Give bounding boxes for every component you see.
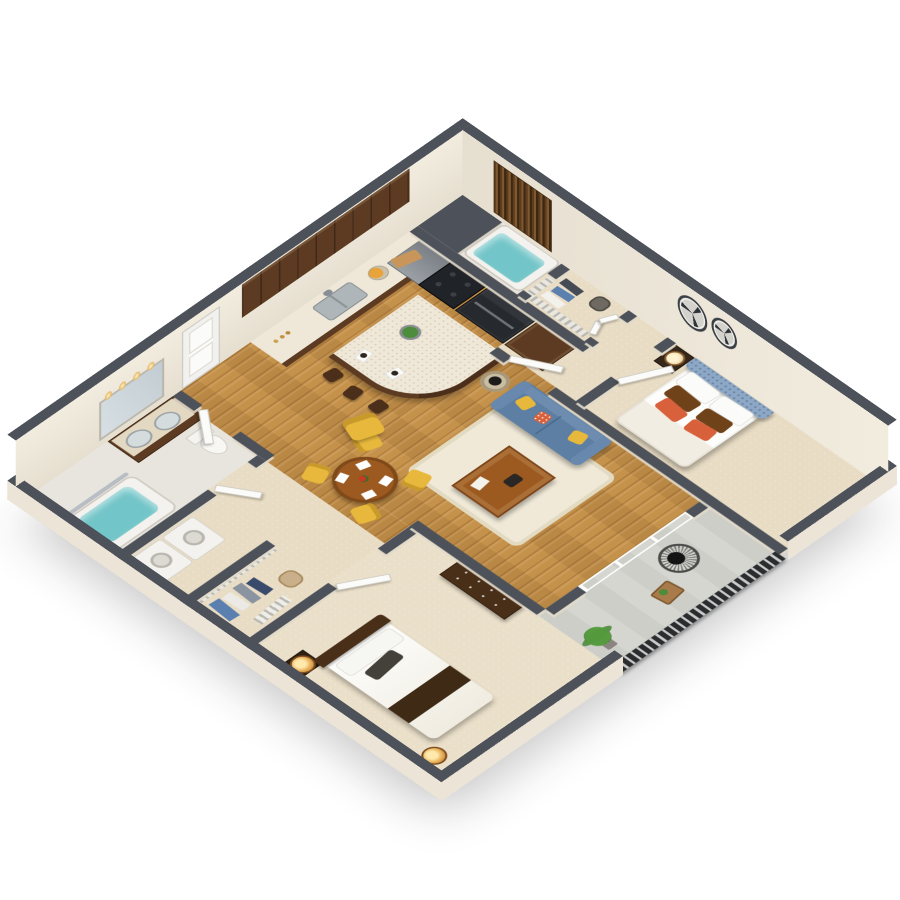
potted-palm-leaves: [582, 626, 614, 647]
shoe-rack: [253, 595, 292, 625]
wicker-basket: [275, 568, 308, 591]
wall: [685, 494, 718, 517]
bed2-pillow: [334, 627, 406, 677]
palm-pot: [601, 638, 618, 650]
wall: [545, 586, 586, 614]
floorplan-3d-scene: [0, 0, 900, 900]
clock-blades: [681, 294, 704, 333]
bedroom2-floor: [236, 526, 614, 789]
wall-bedroom2-living: [410, 520, 546, 614]
patio-railing: [610, 551, 785, 673]
closet1-clothes: [222, 592, 251, 611]
dresser: [439, 560, 525, 620]
sliding-glass-door: [578, 512, 694, 593]
wire-chair: [649, 538, 708, 579]
bed2-headboard: [313, 613, 391, 668]
wall: [378, 520, 427, 554]
clock-blades: [715, 318, 733, 349]
potted-palm-leaves: [582, 625, 612, 647]
wire-chair-cushion: [663, 549, 688, 567]
dining-chair: [349, 502, 383, 525]
closet1-clothes: [246, 577, 273, 595]
bed2-runner: [388, 665, 471, 723]
bedroom2-door: [335, 574, 392, 591]
potted-palm-leaves: [579, 623, 616, 649]
dryer: [161, 516, 226, 561]
isometric-apartment: [24, 195, 880, 789]
closet1-clothes: [232, 583, 261, 604]
bed2-dark-throw: [363, 649, 404, 681]
patio-side-table: [650, 580, 686, 606]
table-plant: [657, 588, 670, 597]
dryer-door: [178, 527, 209, 549]
floor-plane: [24, 195, 880, 789]
